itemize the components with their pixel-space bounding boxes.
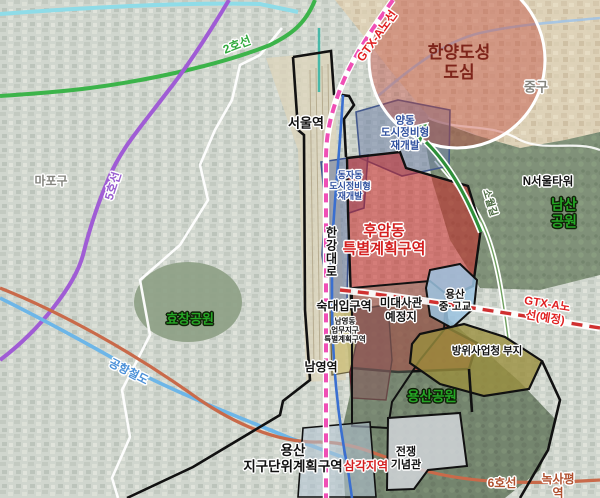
samgakji-area-shape [298,422,376,497]
map-graphics [0,0,600,498]
yongsan-planning-map: 2호선 5호선 GTX-A노선 한양도성 도심 중구 마포구 서울역 양동 도시… [0,0,600,498]
